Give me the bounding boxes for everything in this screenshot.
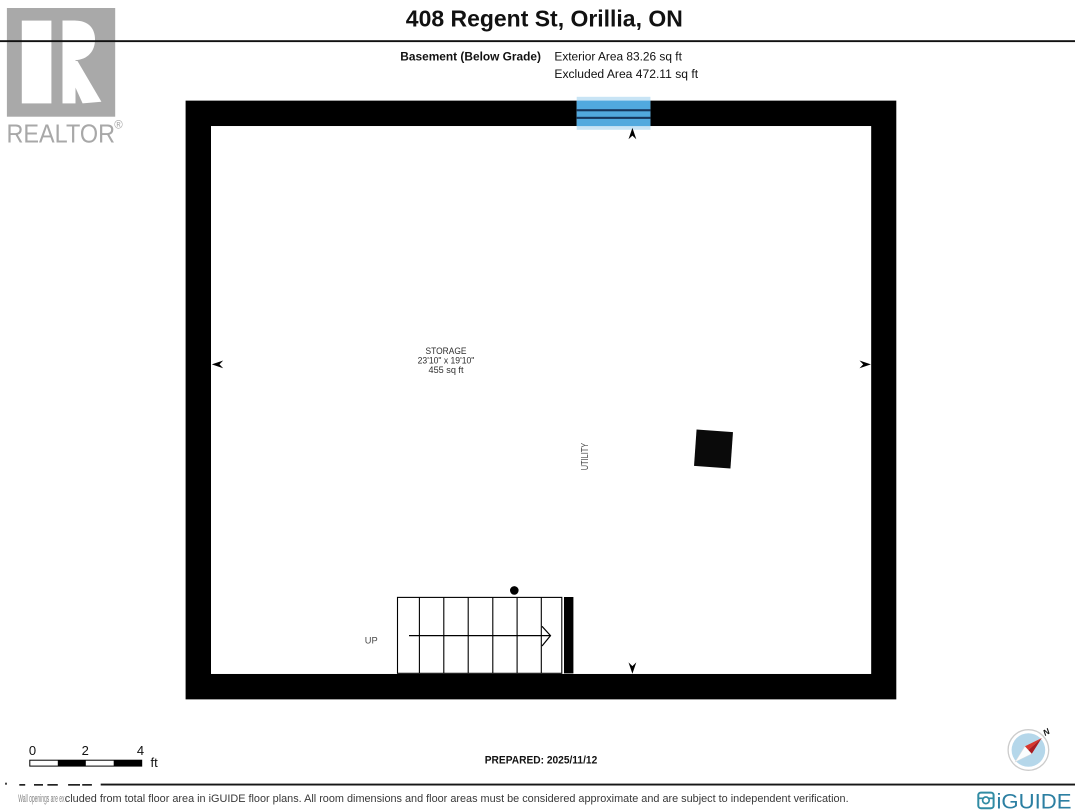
svg-text:Wall openings are ex: Wall openings are ex: [18, 793, 65, 805]
svg-text:®: ®: [114, 120, 123, 132]
svg-text:ft: ft: [151, 755, 159, 770]
svg-text:UTILITY: UTILITY: [580, 443, 591, 471]
svg-text:REALTOR: REALTOR: [7, 118, 116, 148]
svg-text:Excluded Area 472.11 sq ft: Excluded Area 472.11 sq ft: [554, 67, 698, 81]
svg-text:0: 0: [29, 743, 36, 758]
svg-text:PREPARED: 2025/11/12: PREPARED: 2025/11/12: [485, 754, 598, 766]
svg-text:455 sq ft: 455 sq ft: [429, 365, 464, 376]
svg-text:cluded from total floor area i: cluded from total floor area in iGUIDE f…: [65, 793, 849, 805]
svg-text:4: 4: [137, 743, 144, 758]
svg-text:Basement (Below Grade): Basement (Below Grade): [400, 49, 541, 63]
svg-text:iGUIDE: iGUIDE: [997, 790, 1072, 810]
svg-text:408 Regent St, Orillia, ON: 408 Regent St, Orillia, ON: [406, 6, 683, 32]
svg-text:2: 2: [82, 743, 89, 758]
svg-text:UP: UP: [365, 635, 378, 645]
svg-text:Exterior Area 83.26 sq ft: Exterior Area 83.26 sq ft: [554, 49, 682, 63]
